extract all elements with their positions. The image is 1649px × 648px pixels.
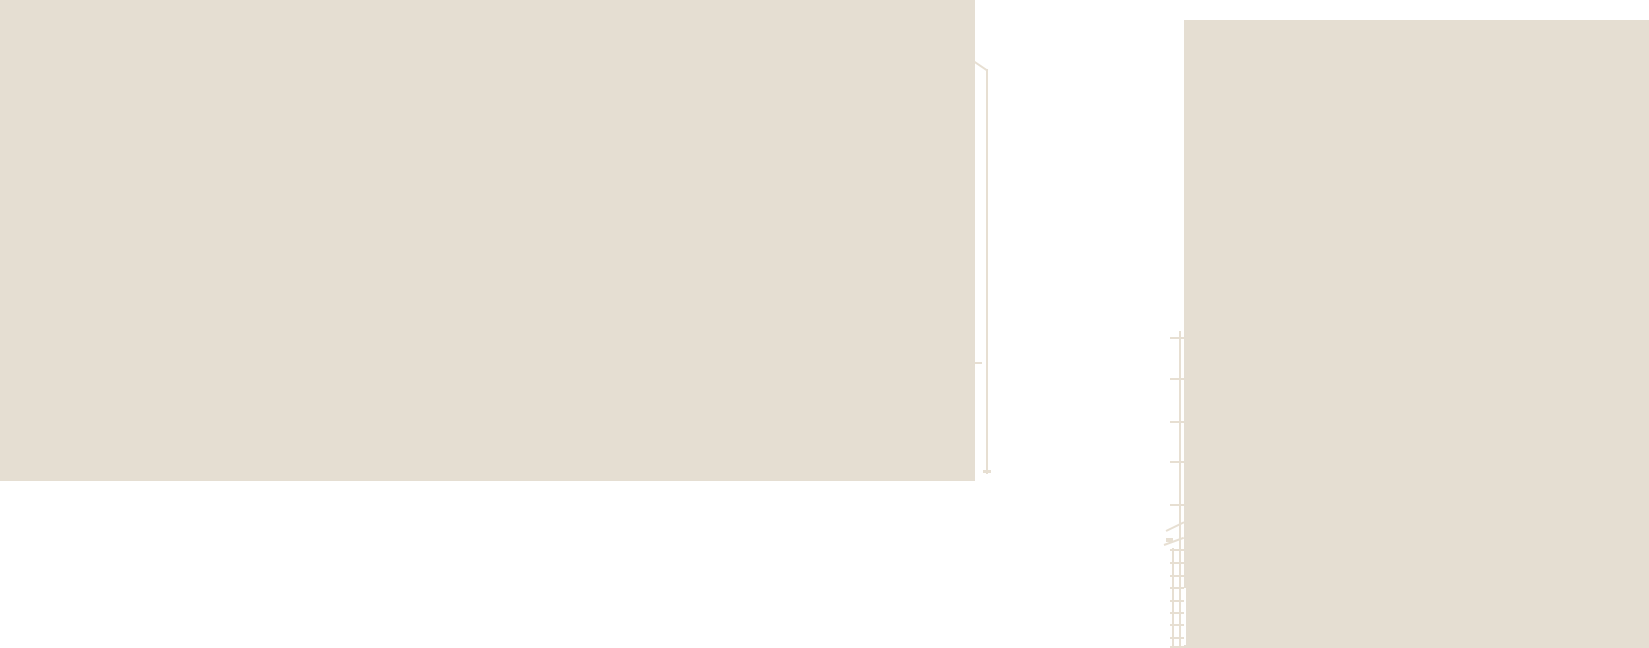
ladder-rung <box>1170 575 1184 577</box>
photo-canvas: Heavily overexposed photo: two flat pale… <box>0 0 1649 648</box>
hanging-cable <box>1166 521 1185 531</box>
wall-bracket <box>1170 337 1184 339</box>
pole-foot-bracket <box>983 470 991 473</box>
wall-bracket <box>1170 504 1184 506</box>
cable-knot <box>1166 538 1173 542</box>
wall-bracket <box>1170 378 1184 380</box>
wall-bracket <box>1170 421 1184 423</box>
ladder-rung <box>1170 624 1184 626</box>
ladder-rung <box>1170 549 1184 551</box>
rooftop-pole <box>986 69 988 474</box>
ladder-rung <box>1170 612 1184 614</box>
left-building-wall <box>0 0 975 481</box>
wall-bracket <box>1170 461 1184 463</box>
wall-duct-top-tick <box>975 362 982 364</box>
ladder-rung <box>1170 587 1184 589</box>
ladder-rung <box>1170 637 1184 639</box>
ladder-rung <box>1170 600 1184 602</box>
ladder-rung <box>1170 562 1184 564</box>
right-building-wall <box>1184 20 1649 648</box>
